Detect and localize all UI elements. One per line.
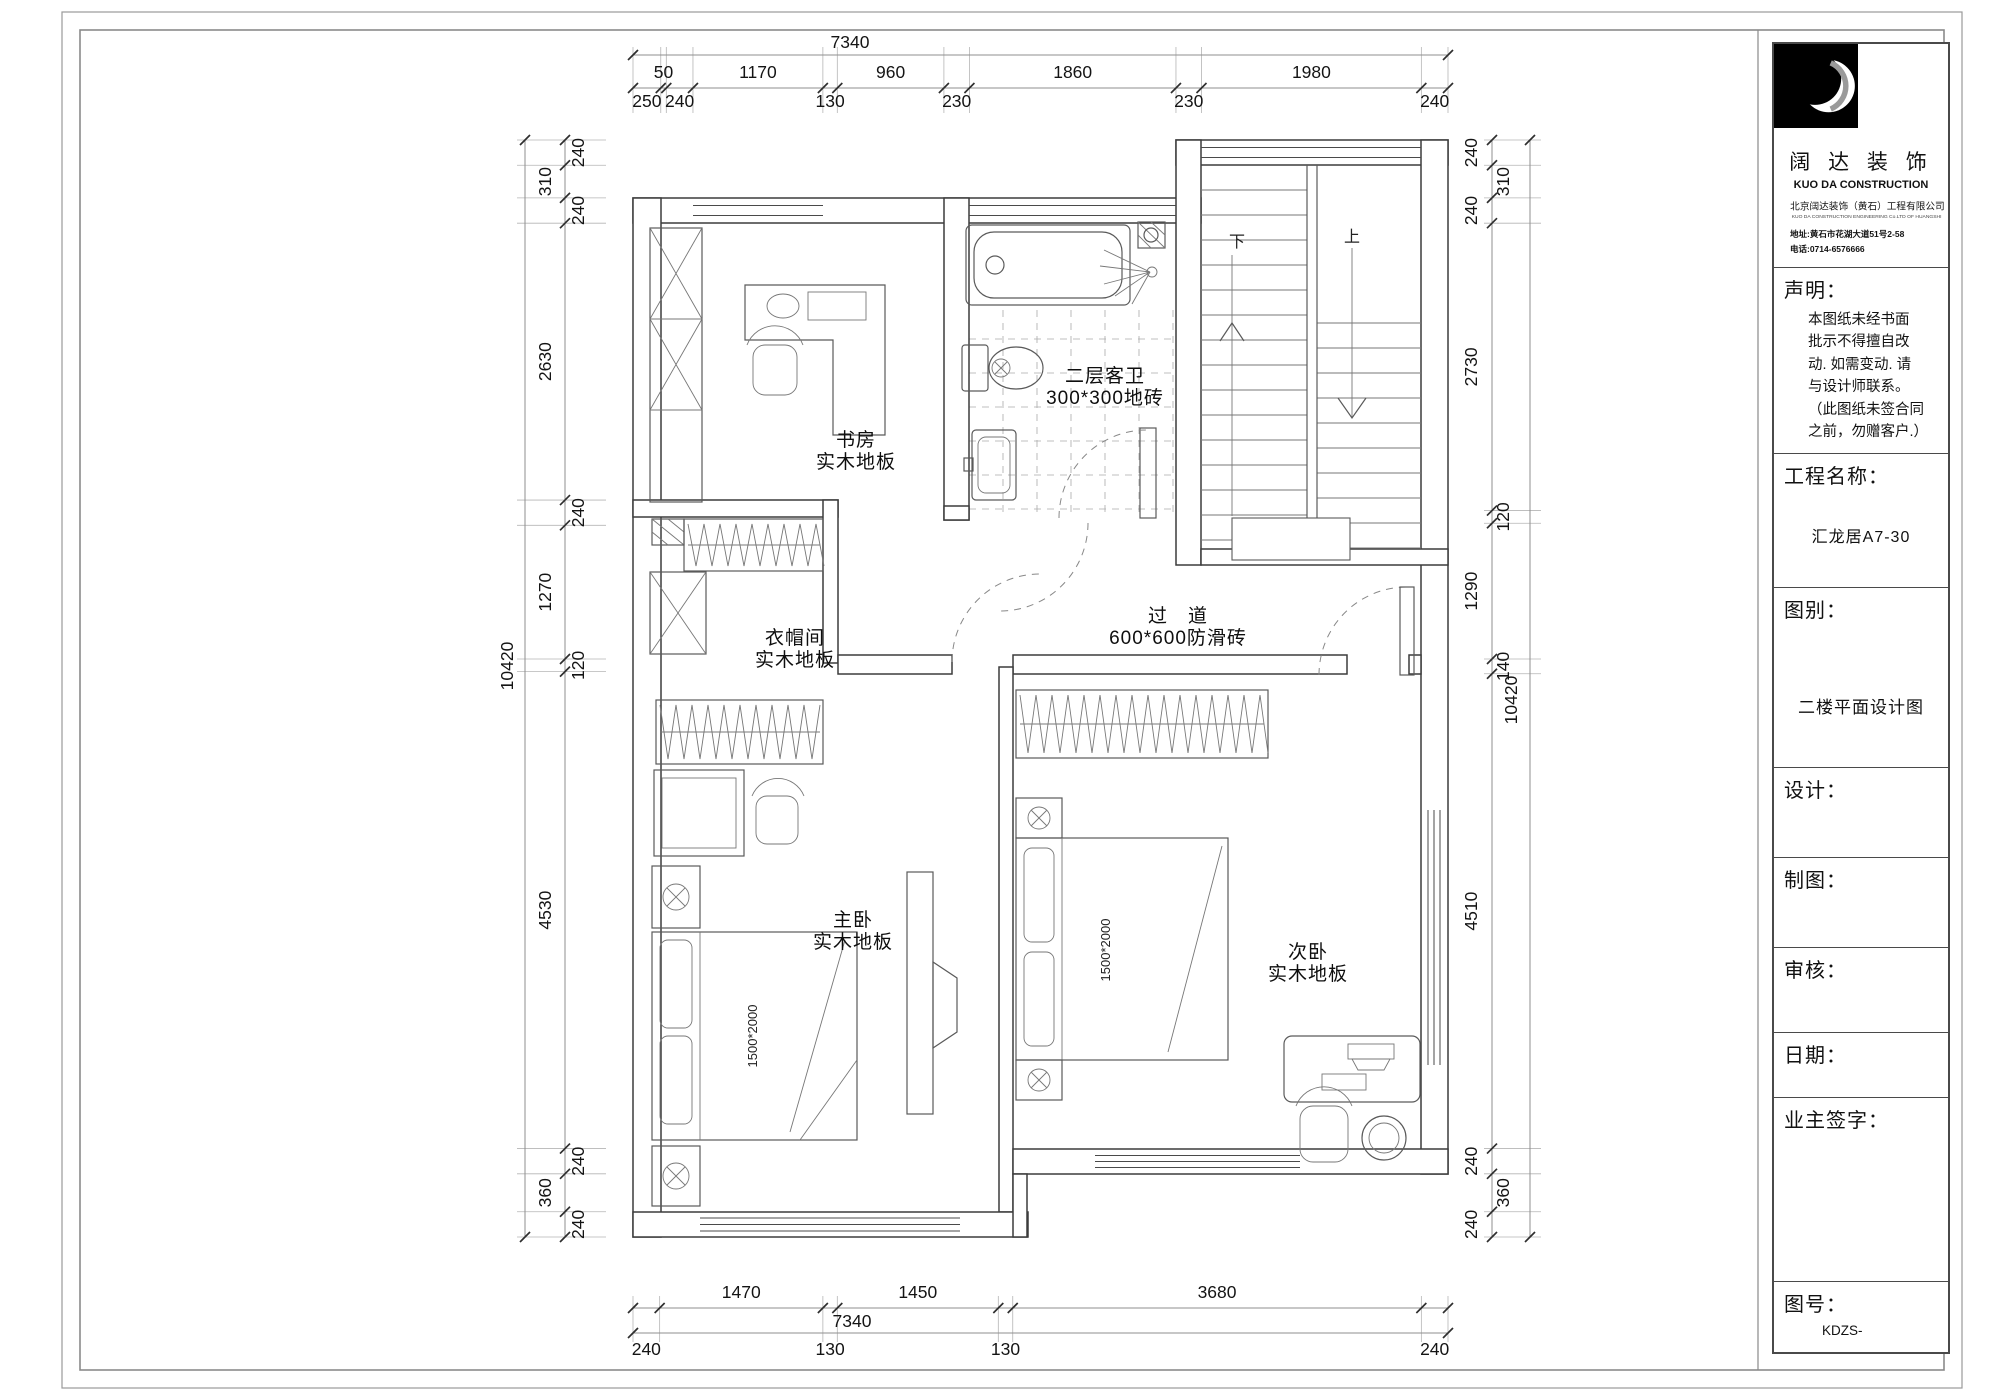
reviewer-label: 审核：	[1784, 954, 1938, 983]
room-label-bath: 二层客卫 300*300地砖	[1046, 366, 1164, 410]
date-section: 日期：	[1774, 1033, 1948, 1098]
room-floor-spec: 实木地板	[816, 452, 896, 474]
svg-text:1860: 1860	[1053, 62, 1092, 82]
svg-text:230: 230	[1174, 91, 1203, 111]
svg-text:310: 310	[535, 167, 555, 196]
company-full-name-en: KUO DA CONSTRUCTION ENGINEERING Co.LTD O…	[1792, 214, 1931, 219]
svg-text:50: 50	[654, 62, 674, 82]
second-bed	[1016, 838, 1228, 1060]
svg-text:120: 120	[568, 650, 588, 679]
title-block: 阔 达 装 饰 KUO DA CONSTRUCTION 北京阔达装饰（黄石）工程…	[1772, 42, 1950, 1354]
svg-text:4530: 4530	[535, 890, 555, 929]
svg-text:1170: 1170	[739, 62, 777, 82]
svg-text:240: 240	[665, 91, 694, 111]
svg-text:1500*2000: 1500*2000	[745, 1005, 760, 1068]
svg-text:10420: 10420	[497, 641, 517, 690]
second-furniture	[1016, 690, 1420, 1162]
statement-label: 声明：	[1784, 274, 1938, 303]
svg-text:240: 240	[1461, 1146, 1481, 1175]
room-floor-spec: 300*300地砖	[1046, 388, 1164, 410]
corridor-door-arc	[1000, 523, 1088, 611]
svg-text:240: 240	[1420, 1339, 1449, 1359]
statement-line: 本图纸未经书面	[1808, 309, 1938, 331]
svg-text:240: 240	[568, 196, 588, 225]
project-value: 汇龙居A7-30	[1784, 523, 1938, 547]
second-desk	[1284, 1036, 1420, 1102]
svg-text:上: 上	[1344, 228, 1360, 246]
room-floor-spec: 600*600防滑砖	[1109, 628, 1247, 650]
room-name: 主卧	[813, 910, 893, 932]
bathtub	[966, 225, 1130, 305]
date-label: 日期：	[1784, 1039, 1938, 1068]
svg-text:240: 240	[1461, 138, 1481, 167]
bathroom-door	[1059, 428, 1156, 518]
room-name: 衣帽间	[755, 628, 835, 650]
master-chair	[752, 778, 804, 844]
drawing-sheet: 2505024011701309602301860230198024024014…	[0, 0, 2000, 1400]
svg-text:130: 130	[991, 1339, 1020, 1359]
svg-text:240: 240	[568, 498, 588, 527]
svg-text:10420: 10420	[1501, 675, 1521, 724]
statement-line: 与设计师联系。	[1808, 376, 1938, 398]
svg-text:240: 240	[632, 1339, 661, 1359]
windows	[693, 148, 1440, 1232]
svg-text:1450: 1450	[898, 1282, 937, 1302]
room-label-second: 次卧 实木地板	[1268, 942, 1348, 986]
drawing-number-value: KDZS-	[1784, 1323, 1938, 1338]
tv	[933, 962, 957, 1048]
svg-text:1980: 1980	[1292, 62, 1331, 82]
company-full-name: 北京阔达装饰（黄石）工程有限公司	[1790, 200, 1932, 214]
bathroom-tile-grid	[969, 310, 1176, 518]
svg-text:960: 960	[876, 62, 905, 82]
company-name-en: KUO DA CONSTRUCTION	[1784, 179, 1938, 191]
floor-plan-drawing: 2505024011701309602301860230198024024014…	[0, 0, 2000, 1400]
svg-text:240: 240	[568, 138, 588, 167]
svg-text:360: 360	[535, 1178, 555, 1207]
company-name-cn: 阔 达 装 饰	[1784, 146, 1938, 176]
room-label-master: 主卧 实木地板	[813, 910, 893, 954]
svg-text:3680: 3680	[1198, 1282, 1237, 1302]
room-floor-spec: 实木地板	[1268, 964, 1348, 986]
tv-cabinet	[907, 872, 933, 1114]
owner-signature-section: 业主签字：	[1774, 1098, 1948, 1282]
company-header: 阔 达 装 饰 KUO DA CONSTRUCTION 北京阔达装饰（黄石）工程…	[1774, 44, 1948, 268]
svg-text:7340: 7340	[833, 1311, 872, 1331]
svg-text:250: 250	[632, 91, 661, 111]
room-name: 书房	[816, 430, 896, 452]
svg-text:120: 120	[1493, 502, 1513, 531]
designer-label: 设计：	[1784, 774, 1938, 803]
reviewer-section: 审核：	[1774, 948, 1948, 1033]
statement-line: 批示不得擅自改	[1808, 331, 1938, 353]
sheet-type-value: 二楼平面设计图	[1784, 693, 1938, 718]
svg-text:240: 240	[568, 1146, 588, 1175]
room-label-closet: 衣帽间 实木地板	[755, 628, 835, 672]
company-logo	[1819, 56, 1903, 140]
svg-text:1270: 1270	[535, 572, 555, 611]
svg-text:4510: 4510	[1461, 891, 1481, 930]
svg-text:130: 130	[815, 91, 844, 111]
room-label-corridor: 过 道 600*600防滑砖	[1109, 606, 1247, 650]
room-name: 过 道	[1109, 606, 1247, 628]
bathroom-sink	[964, 430, 1016, 500]
stair-opening	[1232, 518, 1350, 560]
svg-text:240: 240	[1420, 91, 1449, 111]
svg-text:1290: 1290	[1461, 571, 1481, 610]
company-phone: 电话:0714-6576666	[1784, 243, 1938, 255]
svg-text:240: 240	[1461, 196, 1481, 225]
room-floor-spec: 实木地板	[813, 932, 893, 954]
svg-text:360: 360	[1493, 1178, 1513, 1207]
designer-section: 设计：	[1774, 768, 1948, 858]
statement-line: 动. 如需变动. 请	[1808, 354, 1938, 376]
statement-line: （此图纸未签合同	[1808, 399, 1938, 421]
sheet-type-section: 图别： 二楼平面设计图	[1774, 588, 1948, 768]
room-label-study: 书房 实木地板	[816, 430, 896, 474]
study-desk	[745, 285, 885, 435]
svg-text:310: 310	[1493, 167, 1513, 196]
svg-text:7340: 7340	[831, 32, 870, 52]
statement-line: 之前，勿赠客户.）	[1808, 421, 1938, 443]
svg-text:1470: 1470	[722, 1282, 761, 1302]
stair-up-arrow	[1338, 248, 1366, 418]
drawing-number-label: 图号：	[1784, 1288, 1938, 1317]
svg-text:2630: 2630	[535, 342, 555, 381]
svg-text:240: 240	[568, 1210, 588, 1239]
staircase	[1201, 165, 1421, 560]
master-furniture	[652, 770, 957, 1206]
svg-text:1500*2000: 1500*2000	[1098, 919, 1113, 982]
sheet-type-label: 图别：	[1784, 594, 1938, 623]
owner-signature-label: 业主签字：	[1784, 1104, 1938, 1133]
master-door-arc	[952, 574, 1040, 662]
statement-text: 本图纸未经书面 批示不得擅自改 动. 如需变动. 请 与设计师联系。 （此图纸未…	[1784, 309, 1938, 444]
master-dresser	[654, 770, 744, 856]
room-name: 二层客卫	[1046, 366, 1164, 388]
svg-text:240: 240	[1461, 1210, 1481, 1239]
svg-text:130: 130	[815, 1339, 844, 1359]
svg-text:230: 230	[942, 91, 971, 111]
project-label: 工程名称：	[1784, 460, 1938, 489]
room-floor-spec: 实木地板	[755, 650, 835, 672]
toilet	[962, 345, 1043, 391]
drafter-label: 制图：	[1784, 864, 1938, 893]
project-name-section: 工程名称： 汇龙居A7-30	[1774, 454, 1948, 588]
study-chair	[747, 326, 803, 395]
svg-text:2730: 2730	[1461, 347, 1481, 386]
svg-text:下: 下	[1229, 234, 1245, 251]
shower-head	[1100, 222, 1165, 304]
statement-section: 声明： 本图纸未经书面 批示不得擅自改 动. 如需变动. 请 与设计师联系。 （…	[1774, 268, 1948, 454]
drawing-number-section: 图号： KDZS-	[1774, 1282, 1948, 1352]
drafter-section: 制图：	[1774, 858, 1948, 948]
company-address: 地址:黄石市花湖大道51号2-58	[1784, 228, 1938, 240]
stair-down-arrow	[1220, 255, 1244, 516]
room-name: 次卧	[1268, 942, 1348, 964]
